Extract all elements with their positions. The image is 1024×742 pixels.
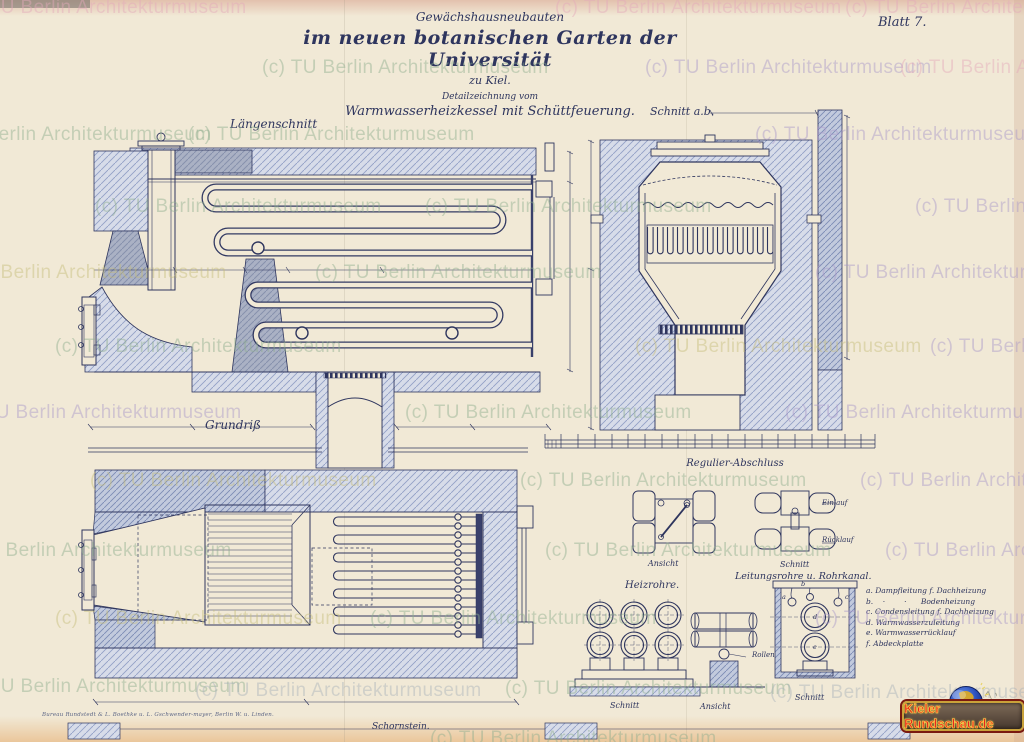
- regulier-schnitt-drawing: [755, 491, 836, 551]
- scanned-drawing-sheet: Gewächshausneubauten im neuen botanische…: [0, 0, 1024, 742]
- watermark: (c) TU Berlin Architekturmuseum: [0, 0, 247, 19]
- rohrkanal-pipe-letters: a b c d e: [782, 580, 849, 651]
- laengenschnitt-drawing: [80, 135, 580, 470]
- scan-corner-dark: [0, 0, 90, 8]
- legend: a. Dampfleitung f. Dachheizung b. · · Bo…: [866, 586, 994, 649]
- legend-item: d. Warmwasserzuleitung: [866, 618, 994, 629]
- legend-item: b. · · Bodenheizung: [866, 597, 994, 608]
- legend-item: f. Abdeckplatte: [866, 639, 994, 650]
- legend-item: a. Dampfleitung f. Dachheizung: [866, 586, 994, 597]
- title-line-5: Warmwasserheizkessel mit Schüttfeuerung.: [250, 104, 730, 119]
- heizrohre-ansicht-drawing: [685, 613, 765, 687]
- grundriss-drawing: [80, 430, 540, 730]
- legend-item: e. Warmwasserrücklauf: [866, 628, 994, 639]
- title-block: Gewächshausneubauten im neuen botanische…: [250, 10, 730, 119]
- label-laengenschnitt: Längenschnitt: [230, 118, 317, 130]
- watermark: (c) TU Berlin Architekturmuseum: [845, 0, 1024, 19]
- watermark: (c) TU Berlin Architekturmuseum: [900, 57, 1024, 79]
- watermark: (c) TU Berlin Architekturmuseum: [915, 196, 1024, 218]
- scale-bar: [540, 415, 890, 460]
- svg-text:a: a: [782, 593, 786, 601]
- schnitt-ab-drawing: [585, 105, 855, 440]
- title-line-2: im neuen botanischen Garten der Universi…: [250, 27, 730, 71]
- svg-text:e: e: [813, 643, 817, 651]
- title-line-3: zu Kiel.: [250, 74, 730, 87]
- regulier-ansicht-drawing: [633, 491, 715, 553]
- title-line-1: Gewächshausneubauten: [250, 10, 730, 24]
- sheet-number: Blatt 7.: [878, 16, 926, 29]
- rohrkanal-drawing: a b c d e: [770, 580, 860, 678]
- heizrohre-schnitt-drawing: [570, 599, 700, 696]
- svg-text:c: c: [845, 593, 849, 601]
- kieler-rundschau-badge: Kieler Rundschau.de: [902, 701, 1024, 731]
- svg-text:b: b: [801, 580, 805, 588]
- badge-text: Kieler Rundschau.de: [904, 701, 1022, 731]
- svg-text:d: d: [813, 613, 817, 621]
- coil-port-circles: [455, 514, 461, 637]
- legend-item: c. Condensleitung f. Dachheizung: [866, 607, 994, 618]
- signature-line: Bureau Rundstedt & L. Boethke u. L. Gsch…: [42, 712, 274, 718]
- door-plan: [79, 530, 97, 610]
- bottom-cutoff-drawing: [30, 705, 980, 742]
- title-line-4: Detailzeichnung vom: [250, 92, 730, 102]
- watermark: (c) TU Berlin Architekturmuseum: [930, 336, 1024, 358]
